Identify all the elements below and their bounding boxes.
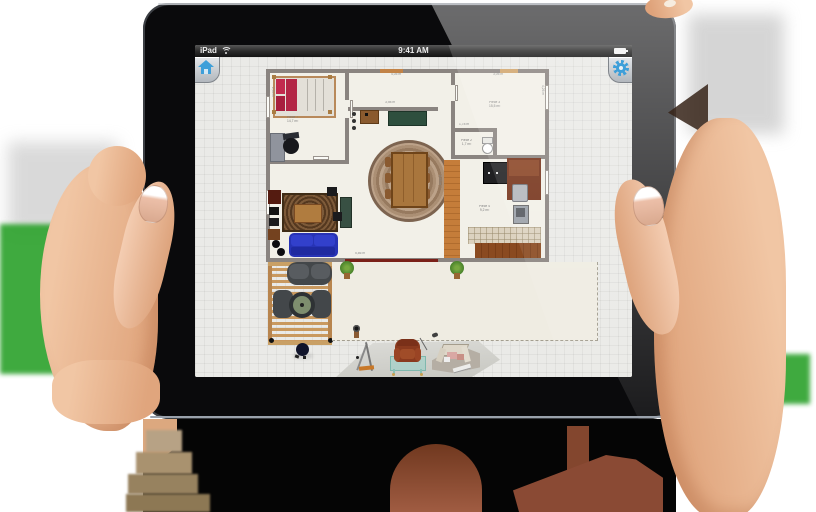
wall-bath-top[interactable] [455, 128, 497, 132]
floor-pouf[interactable] [272, 240, 280, 248]
thumb-reflection-dome [390, 444, 482, 512]
wood-floor-strip [444, 160, 460, 258]
dining-table[interactable] [391, 152, 428, 208]
dimension-label: 2,90 m [271, 87, 274, 97]
outdoor-sofa[interactable] [287, 262, 332, 285]
oven[interactable] [513, 205, 529, 224]
clock: 9:41 AM [195, 46, 632, 56]
wall-bath-right[interactable] [493, 128, 497, 159]
window-left-1[interactable] [266, 96, 270, 118]
bed-post [328, 110, 332, 114]
tablet-bottom-rim [150, 416, 669, 418]
dimension-label: 3,98 m [385, 101, 395, 104]
hand-reflection-slab [513, 455, 663, 512]
app-screen: iPad 9:41 AM [195, 45, 632, 377]
stool[interactable] [296, 343, 309, 356]
battery-nub [626, 50, 628, 52]
desk-chair[interactable] [283, 138, 299, 154]
home-icon-door [204, 69, 208, 74]
room-label-room3: Pièce 3 15,5 m² [489, 101, 500, 109]
left-hand-finger [88, 146, 146, 206]
table-plank-line [403, 154, 404, 202]
room-label-bathroom: Pièce 2 1,7 m² [461, 139, 472, 147]
counter-tiles[interactable] [468, 227, 541, 244]
dimension-label: 5,86 m [355, 252, 365, 255]
plant-pot [454, 273, 460, 279]
bed-slat [307, 79, 308, 111]
bed-duvet [286, 79, 297, 111]
dimension-label: 4,05 m [391, 73, 401, 76]
oven-door [516, 208, 525, 217]
speaker[interactable] [327, 187, 337, 196]
dimension-label: 3,05 m [493, 73, 503, 76]
dimension-label: 2,43 m [438, 175, 441, 185]
leather-armchair[interactable] [395, 339, 420, 362]
caster [392, 373, 395, 376]
dimension-label: 1,78 m [459, 123, 469, 126]
armchair-arm [415, 348, 421, 361]
bed-post [272, 75, 276, 79]
side-shelf[interactable] [268, 229, 280, 240]
pergola-post [268, 262, 272, 345]
home-icon [198, 60, 214, 67]
toilet-bowl[interactable] [482, 143, 493, 154]
blue-sofa[interactable] [289, 233, 338, 257]
outdoor-table[interactable] [289, 292, 315, 318]
miniature-furniture [457, 354, 464, 360]
settings-button[interactable] [608, 57, 632, 83]
hand-reflection-step [136, 452, 192, 474]
gear-icon-hole [619, 66, 623, 70]
hand-reflection-step [128, 474, 198, 494]
wall-bedroom-right[interactable] [345, 118, 349, 164]
table-center [300, 303, 304, 307]
wall-knob [352, 112, 356, 116]
sofa-cushion [291, 235, 313, 246]
easel-knob [356, 356, 359, 359]
sofa-seat [291, 247, 335, 255]
bed-slat [323, 79, 324, 111]
cabinet-knob [496, 172, 498, 174]
stool-leg [303, 356, 306, 359]
table-plank-line [413, 154, 414, 202]
counter-wood-front[interactable] [475, 243, 541, 258]
tablet-top-rim [158, 3, 661, 5]
bed-pillow [276, 96, 285, 111]
outdoor-cushion [311, 264, 330, 279]
room-area: 15,5 m² [489, 105, 500, 109]
plant-pot [344, 273, 350, 279]
bed-post [272, 110, 276, 114]
corner-cabinet-top [509, 160, 539, 176]
battery-icon [614, 48, 626, 54]
bed-post [328, 75, 332, 79]
kitchen-black-cabinet[interactable] [483, 162, 509, 184]
room-label-bedroom: Pièce 7 14,7 m² [287, 116, 298, 124]
room-area: 14,7 m² [287, 120, 298, 124]
window-right-1[interactable] [545, 85, 549, 110]
home-button[interactable] [195, 57, 220, 83]
hand-reflection-step [126, 494, 210, 512]
bed[interactable] [273, 76, 336, 118]
room-area: 9,2 m² [479, 209, 490, 213]
coffee-table[interactable] [294, 204, 322, 223]
wall-knob [352, 119, 356, 123]
outdoor-cushion [289, 264, 309, 279]
console-desk[interactable] [360, 110, 379, 124]
photo-stage: iPad 9:41 AM [0, 0, 816, 512]
ipad-device: iPad 9:41 AM [143, 3, 676, 419]
armchair-seat [400, 349, 415, 359]
patio-area[interactable] [332, 262, 598, 341]
cabinet-knob [488, 172, 490, 174]
left-hand-wrist [52, 360, 160, 424]
floor-pouf[interactable] [277, 248, 285, 256]
sofa-cushion [314, 235, 335, 246]
patio-post-cap [353, 325, 360, 332]
bed-pillow [276, 79, 285, 94]
green-rug[interactable] [388, 111, 427, 126]
speaker[interactable] [333, 212, 342, 221]
dimension-label: 4,26 m [541, 85, 544, 95]
wall-room3-left[interactable] [451, 69, 455, 85]
room-area: 1,7 m² [461, 143, 472, 147]
wall-knob [352, 126, 356, 130]
bed-slat [315, 79, 316, 111]
console-item [365, 113, 368, 116]
door-leaf-living[interactable] [313, 156, 329, 160]
window-right-2[interactable] [545, 170, 549, 195]
armchair-back [397, 339, 418, 346]
tablet-reflection [143, 419, 676, 512]
plan-canvas[interactable]: Pièce 7 14,7 m² Pièce 3 15,5 m² Pièce 2 … [195, 57, 632, 377]
tv-unit[interactable] [268, 190, 281, 204]
deck-post-cap [269, 338, 274, 343]
speaker[interactable] [269, 218, 279, 226]
fridge[interactable] [512, 184, 528, 202]
room-label-kitchen: Pièce 4 9,2 m² [479, 205, 490, 213]
wall-bedroom-right[interactable] [345, 73, 349, 100]
miniature-furniture [444, 357, 450, 362]
hand-reflection-step [146, 430, 182, 452]
caster [420, 373, 423, 376]
door-leaf-room3[interactable] [455, 85, 458, 101]
speaker[interactable] [269, 207, 279, 215]
